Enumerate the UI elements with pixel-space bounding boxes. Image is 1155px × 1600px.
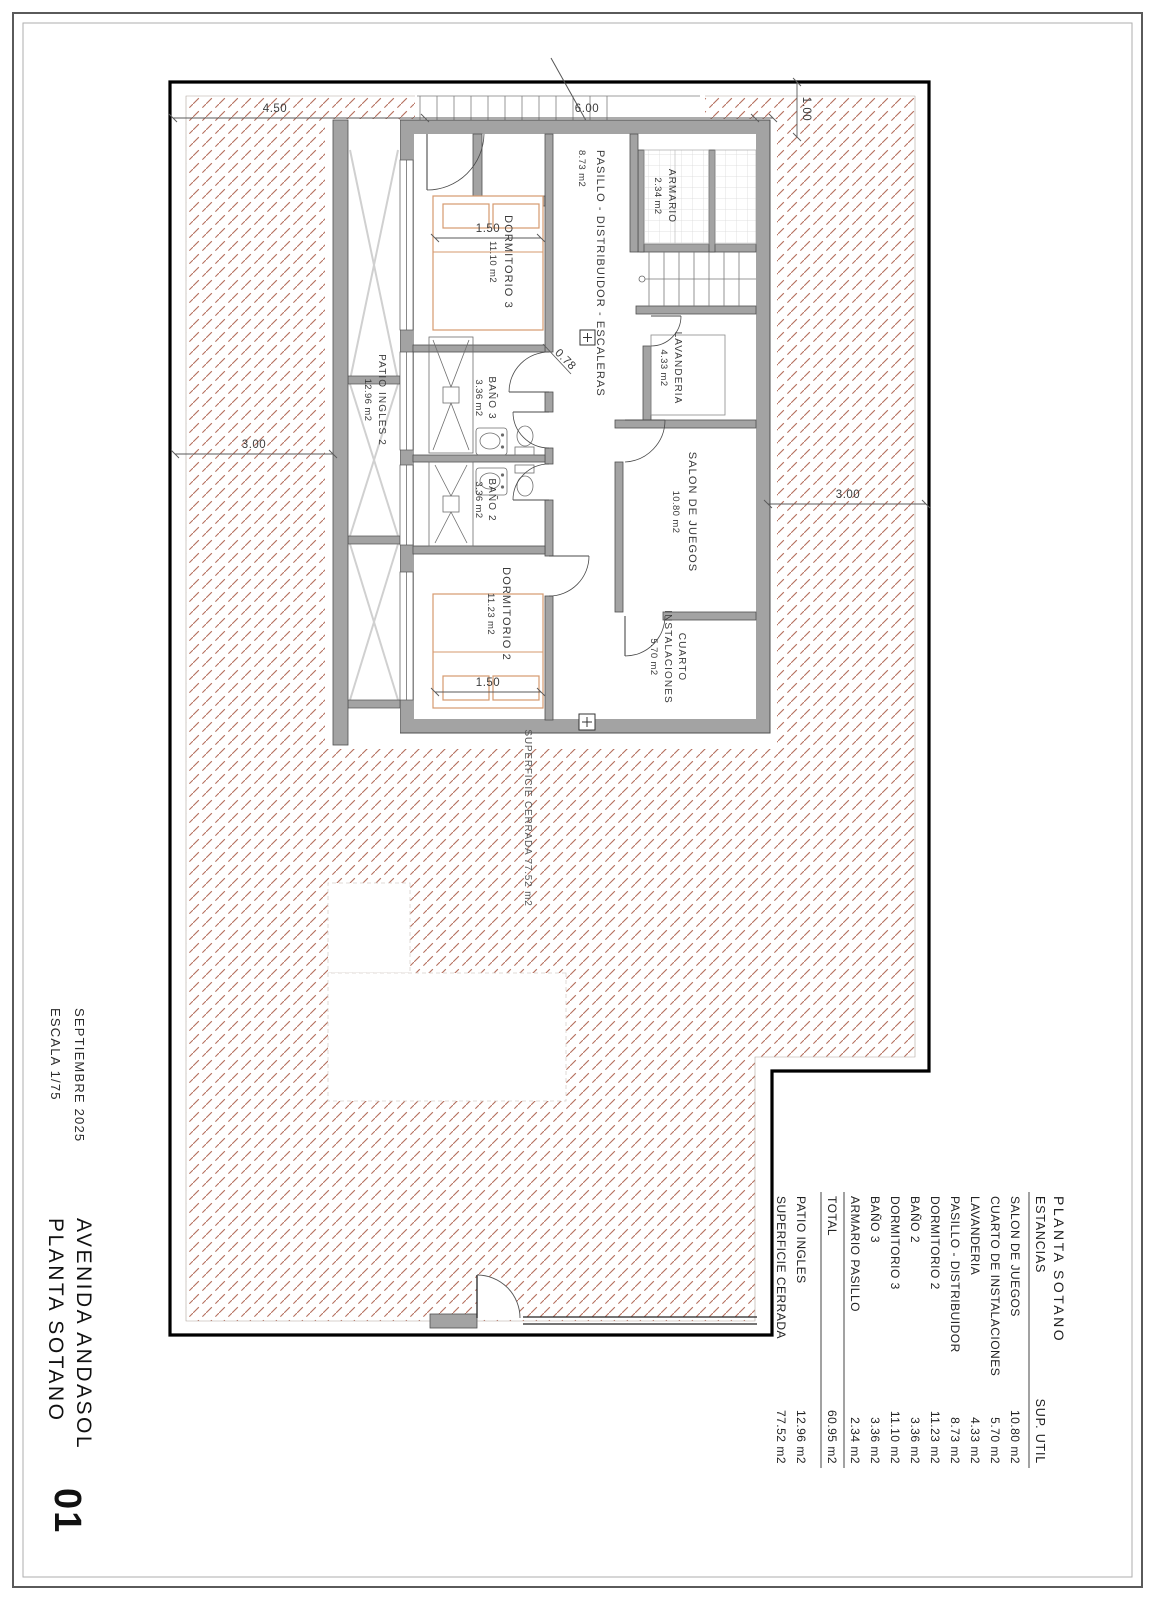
label-salon-area: 10.80 m2	[670, 491, 681, 534]
sheet-scale: ESCALA 1/75	[48, 1008, 63, 1101]
table-total-value: 60.95 m2	[825, 1410, 839, 1464]
table-row-name: DORMITORIO 2	[928, 1196, 942, 1290]
table-row-area: 4.33 m2	[968, 1417, 982, 1464]
table-row-area: 10.80 m2	[1008, 1410, 1022, 1464]
label-superficie-cerrada: SUPERFICIE CERRADA 77.52 m2	[522, 729, 533, 906]
areas-table: PLANTA SOTANO ESTANCIAS SUP. UTIL SALON …	[774, 1192, 1067, 1468]
site-cutout-b	[328, 973, 566, 1101]
table-extra-name: PATIO INGLES	[794, 1196, 808, 1284]
table-title: PLANTA SOTANO	[1051, 1196, 1067, 1343]
table-row-area: 5.70 m2	[988, 1417, 1002, 1464]
table-row-area: 11.23 m2	[928, 1411, 942, 1464]
dim-6.00: 6.00	[575, 103, 599, 115]
label-patio: PATIO INGLES 2	[376, 354, 387, 446]
table-row-name: SALON DE JUEGOS	[1008, 1196, 1022, 1317]
window-bano-2	[400, 465, 413, 545]
patio-ingles	[333, 120, 400, 745]
table-header-area: SUP. UTIL	[1033, 1399, 1047, 1464]
label-patio-area: 12.96 m2	[362, 379, 373, 422]
table-extra-area: 12.96 m2	[794, 1410, 808, 1464]
table-row-name: BAÑO 2	[908, 1196, 922, 1243]
label-salon: SALON DE JUEGOS	[686, 452, 698, 572]
dim-1.00: 1.00	[800, 97, 812, 121]
project-title: AVENIDA ANDASOL	[72, 1218, 95, 1450]
window-bano-3	[400, 352, 413, 450]
table-extra-name: SUPERFICIE CERRADA	[774, 1196, 788, 1339]
sheet-number: 01	[46, 1488, 88, 1534]
label-armario: ARMARIO	[666, 169, 677, 223]
table-row-name: ARMARIO PASILLO	[848, 1196, 862, 1312]
table-total-label: TOTAL	[825, 1196, 839, 1236]
label-cuarto-1: CUARTO	[676, 633, 687, 681]
table-row-area: 11.10 m2	[888, 1411, 902, 1464]
table-row-name: DORMITORIO 3	[888, 1196, 902, 1290]
table-row-area: 3.36 m2	[908, 1417, 922, 1464]
table-row-name: LAVANDERIA	[968, 1196, 982, 1275]
retaining-wall	[333, 120, 348, 745]
window-dormitorio-2	[400, 572, 413, 700]
label-dormitorio-2: DORMITORIO 2	[500, 567, 512, 661]
label-lavanderia: LAVANDERIA	[672, 332, 683, 405]
table-rows: SALON DE JUEGOS 10.80 m2 CUARTO DE INSTA…	[848, 1196, 1022, 1464]
title-block: SEPTIEMBRE 2025 ESCALA 1/75 AVENIDA ANDA…	[44, 1008, 95, 1534]
table-row-name: CUARTO DE INSTALACIONES	[988, 1196, 1002, 1376]
sheet-date: SEPTIEMBRE 2025	[72, 1008, 87, 1142]
drawing-sheet: 6.00 4.50 1.00 3.00 3.00 1.50 1.50 0.78 …	[0, 0, 1155, 1600]
label-bano-2: BAÑO 2	[486, 478, 499, 521]
windows	[400, 160, 413, 700]
table-row-area: 8.73 m2	[948, 1417, 962, 1464]
label-bano-3: BAÑO 3	[486, 376, 499, 419]
drawing-title: PLANTA SOTANO	[44, 1218, 67, 1422]
label-cuarto-2: INSTALACIONES	[662, 610, 673, 704]
label-bano-3-area: 3.36 m2	[473, 379, 484, 416]
dim-3.00-bottom: 3.00	[242, 439, 266, 451]
label-cuarto-area: 5.70 m2	[648, 638, 659, 675]
rotated-drawing: 6.00 4.50 1.00 3.00 3.00 1.50 1.50 0.78 …	[44, 58, 1067, 1534]
dim-3.00-top: 3.00	[836, 489, 860, 501]
label-armario-area: 2.34 m2	[652, 177, 663, 214]
label-dormitorio-2-area: 11.23 m2	[485, 593, 496, 635]
label-bano-2-area: 3.36 m2	[473, 481, 484, 518]
window-dormitorio-3	[400, 160, 413, 330]
label-pasillo: PASILLO - DISTRIBUIDOR - ESCALERAS	[594, 150, 606, 397]
label-dormitorio-3-area: 11.10 m2	[487, 241, 498, 283]
dim-1.50-dorm3: 1.50	[476, 223, 500, 235]
table-row-area: 2.34 m2	[848, 1417, 862, 1464]
table-extra-area: 77.52 m2	[774, 1410, 788, 1464]
label-lavanderia-area: 4.33 m2	[658, 349, 669, 386]
floor-plan-canvas: 6.00 4.50 1.00 3.00 3.00 1.50 1.50 0.78 …	[0, 0, 1155, 1600]
site-cutout-a	[328, 883, 410, 973]
table-row-name: PASILLO - DISTRIBUIDOR	[948, 1196, 962, 1353]
table-row-name: BAÑO 3	[868, 1196, 882, 1243]
dim-4.50: 4.50	[263, 103, 287, 115]
dim-1.50-dorm2: 1.50	[476, 677, 500, 689]
table-header-name: ESTANCIAS	[1033, 1196, 1047, 1273]
label-pasillo-area: 8.73 m2	[576, 150, 587, 187]
table-row-area: 3.36 m2	[868, 1417, 882, 1464]
label-dormitorio-3: DORMITORIO 3	[502, 215, 514, 309]
